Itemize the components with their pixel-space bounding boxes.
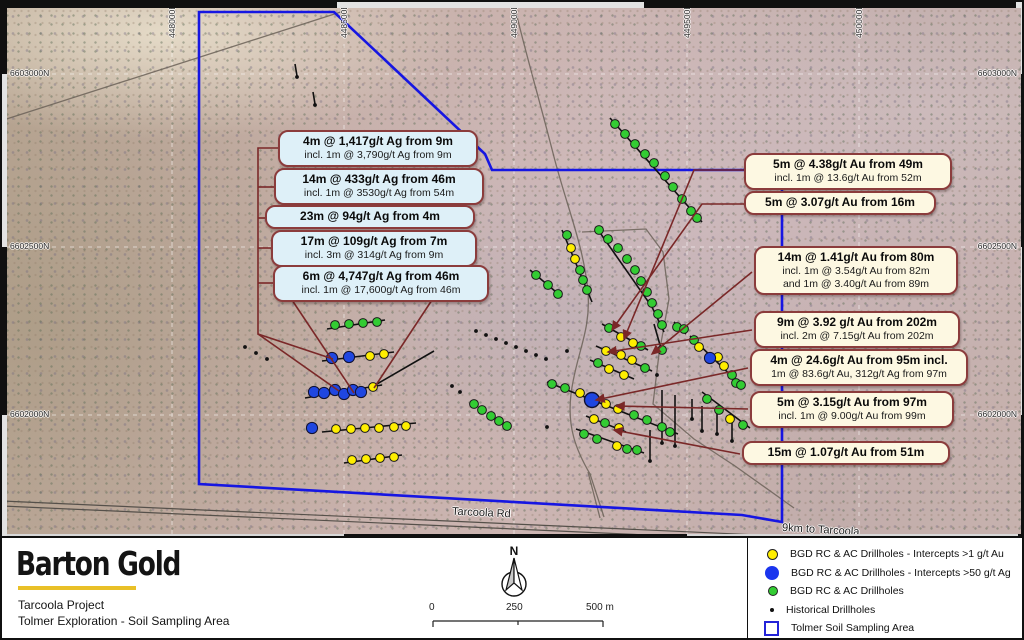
bgd-drillhole xyxy=(594,359,603,368)
gold-assay-callout: 5m @ 4.38g/t Au from 49mincl. 1m @ 13.6g… xyxy=(744,153,952,190)
historical-drillhole xyxy=(660,441,664,445)
assay-headline: 5m @ 3.15g/t Au from 97m xyxy=(760,395,944,410)
au-intercept-drillhole xyxy=(348,456,357,465)
map-figure: 448000E448500E449000E449500E450000E66030… xyxy=(0,0,1024,640)
north-arrow-icon xyxy=(498,556,530,598)
assay-detail: 1m @ 83.6g/t Au, 312g/t Ag from 97m xyxy=(760,368,958,381)
silver-assay-callout: 4m @ 1,417g/t Ag from 9mincl. 1m @ 3,790… xyxy=(278,130,478,167)
au-intercept-drillhole xyxy=(602,347,611,356)
bgd-drillhole xyxy=(601,419,610,428)
northing-label-right: 6603000N xyxy=(978,68,1017,78)
bgd-drillhole xyxy=(611,120,620,129)
bgd-drillhole xyxy=(605,324,614,333)
scale-tick-0: 0 xyxy=(429,602,435,613)
bgd-drillhole xyxy=(548,380,557,389)
au-intercept-drillhole xyxy=(720,362,729,371)
scale-tick-250: 250 xyxy=(506,602,523,613)
legend-label: BGD RC & AC Drillholes xyxy=(790,585,904,597)
bgd-drillhole xyxy=(563,231,572,240)
historical-drillhole xyxy=(450,384,454,388)
bgd-drillhole xyxy=(669,183,678,192)
assay-headline: 4m @ 1,417g/t Ag from 9m xyxy=(288,134,468,149)
legend-label: BGD RC & AC Drillholes - Intercepts >50 … xyxy=(791,567,1011,579)
historical-drillhole xyxy=(545,425,549,429)
bgd-drillhole xyxy=(373,318,382,327)
historical-drillhole xyxy=(648,459,652,463)
bgd-drillhole xyxy=(345,320,354,329)
map-subtitle: Tolmer Exploration - Soil Sampling Area xyxy=(18,614,229,628)
northing-label-right: 6602500N xyxy=(978,241,1017,251)
au-intercept-drillhole xyxy=(629,339,638,348)
northing-label-left: 6603000N xyxy=(10,68,49,78)
legend-label: BGD RC & AC Drillholes - Intercepts >1 g… xyxy=(790,548,1004,560)
easting-label: 450000E xyxy=(854,2,864,51)
assay-detail: incl. 1m @ 3.54g/t Au from 82m and 1m @ … xyxy=(764,265,948,290)
assay-headline: 23m @ 94g/t Ag from 4m xyxy=(275,209,465,224)
assay-detail: incl. 1m @ 13.6g/t Au from 52m xyxy=(754,172,942,185)
legend-item-blue: BGD RC & AC Drillholes - Intercepts >50 … xyxy=(764,565,1011,581)
leader-line xyxy=(258,334,339,391)
au-intercept-drillhole xyxy=(390,423,399,432)
historical-drillhole xyxy=(730,439,734,443)
green-marker-icon xyxy=(768,586,778,596)
historical-drillhole xyxy=(254,351,258,355)
track xyxy=(515,8,604,517)
bgd-drillhole xyxy=(554,290,563,299)
leader-line xyxy=(624,170,744,339)
au-intercept-drillhole xyxy=(375,424,384,433)
bgd-drillhole xyxy=(621,130,630,139)
ag-intercept-drillhole xyxy=(318,387,329,398)
bgd-drillhole xyxy=(739,421,748,430)
assay-detail: incl. 1m @ 9.00g/t Au from 99m xyxy=(760,410,944,423)
easting-label: 448500E xyxy=(339,2,349,51)
au-intercept-drillhole xyxy=(605,365,614,374)
project-title: Tarcoola Project xyxy=(18,598,104,612)
legend-label: Historical Drillholes xyxy=(786,604,875,616)
au-intercept-drillhole xyxy=(613,442,622,451)
historical-drillhole xyxy=(690,417,694,421)
au-intercept-drillhole xyxy=(376,454,385,463)
ag-intercept-drillhole xyxy=(343,351,354,362)
bgd-drillhole xyxy=(604,235,613,244)
assay-headline: 15m @ 1.07g/t Au from 51m xyxy=(752,445,940,460)
silver-assay-callout: 6m @ 4,747g/t Ag from 46mincl. 1m @ 17,6… xyxy=(273,265,489,302)
easting-label: 448000E xyxy=(167,2,177,51)
leader-line xyxy=(374,300,432,388)
assay-headline: 9m @ 3.92 g/t Au from 202m xyxy=(764,315,950,330)
au-intercept-drillhole xyxy=(567,244,576,253)
assay-headline: 14m @ 1.41g/t Au from 80m xyxy=(764,250,948,265)
silver-assay-callout: 23m @ 94g/t Ag from 4m xyxy=(265,205,475,229)
yellow-marker-icon xyxy=(767,549,778,560)
northing-label-right: 6602000N xyxy=(978,409,1017,419)
au-intercept-drillhole xyxy=(361,424,370,433)
legend-item-yellow: BGD RC & AC Drillholes - Intercepts >1 g… xyxy=(764,546,1004,562)
satellite-map: 448000E448500E449000E449500E450000E66030… xyxy=(2,2,1024,540)
gold-assay-callout: 5m @ 3.07g/t Au from 16m xyxy=(744,191,936,215)
ag-intercept-drillhole xyxy=(306,422,317,433)
bgd-drillhole xyxy=(737,381,746,390)
legend-item-black: Historical Drillholes xyxy=(764,602,875,618)
au-intercept-drillhole xyxy=(571,255,580,264)
au-intercept-drillhole xyxy=(402,422,411,431)
bgd-drillhole xyxy=(703,395,712,404)
scale-bar xyxy=(432,620,604,628)
bgd-drillhole xyxy=(532,271,541,280)
assay-headline: 5m @ 4.38g/t Au from 49m xyxy=(754,157,942,172)
au-intercept-drillhole xyxy=(366,352,375,361)
bgd-drillhole xyxy=(666,428,675,437)
bgd-drillhole xyxy=(495,417,504,426)
historical-drillhole xyxy=(458,390,462,394)
historical-drillhole xyxy=(514,345,518,349)
assay-detail: incl. 2m @ 7.15g/t Au from 202m xyxy=(764,330,950,343)
easting-label: 449500E xyxy=(682,2,692,51)
assay-headline: 14m @ 433g/t Ag from 46m xyxy=(284,172,474,187)
assay-headline: 6m @ 4,747g/t Ag from 46m xyxy=(283,269,479,284)
au-intercept-drillhole xyxy=(620,371,629,380)
bgd-drillhole xyxy=(580,430,589,439)
bgd-drillhole xyxy=(633,446,642,455)
bgd-drillhole xyxy=(595,226,604,235)
au-intercept-drillhole xyxy=(332,425,341,434)
bgd-drillhole xyxy=(583,286,592,295)
bgd-drillhole xyxy=(478,406,487,415)
au-intercept-drillhole xyxy=(347,425,356,434)
assay-detail: incl. 1m @ 3530g/t Ag from 54m xyxy=(284,187,474,200)
au-intercept-drillhole xyxy=(602,400,611,409)
bgd-drillhole xyxy=(470,400,479,409)
bgd-drillhole xyxy=(544,281,553,290)
leader-line xyxy=(616,406,748,409)
easting-label: 449000E xyxy=(509,2,519,51)
track xyxy=(588,472,600,518)
historical-drillhole xyxy=(494,337,498,341)
historical-drillhole xyxy=(524,349,528,353)
historical-drillhole xyxy=(243,345,247,349)
historical-drillhole xyxy=(673,444,677,448)
gold-assay-callout: 9m @ 3.92 g/t Au from 202mincl. 2m @ 7.1… xyxy=(754,311,960,348)
historical-drillhole xyxy=(295,75,299,79)
au-intercept-drillhole xyxy=(576,389,585,398)
assay-detail: incl. 1m @ 17,600g/t Ag from 46m xyxy=(283,284,479,297)
gold-assay-callout: 4m @ 24.6g/t Au from 95m incl.1m @ 83.6g… xyxy=(750,349,968,386)
au-intercept-drillhole xyxy=(390,453,399,462)
bgd-drillhole xyxy=(576,266,585,275)
bgd-drillhole xyxy=(641,150,650,159)
northing-label-left: 6602000N xyxy=(10,409,49,419)
au-intercept-drillhole xyxy=(628,356,637,365)
assay-headline: 17m @ 109g/t Ag from 7m xyxy=(281,234,467,249)
bgd-drillhole xyxy=(650,159,659,168)
bgd-drillhole xyxy=(648,299,657,308)
assay-headline: 5m @ 3.07g/t Au from 16m xyxy=(754,195,926,210)
bgd-drillhole xyxy=(715,406,724,415)
historical-drillhole xyxy=(534,353,538,357)
bgd-drillhole xyxy=(631,140,640,149)
historical-drillhole xyxy=(655,373,659,377)
au-intercept-drillhole xyxy=(617,351,626,360)
bgd-drillhole xyxy=(661,172,670,181)
assay-headline: 4m @ 24.6g/t Au from 95m incl. xyxy=(760,353,958,368)
legend-item-green: BGD RC & AC Drillholes xyxy=(764,583,904,599)
bgd-drillhole xyxy=(643,416,652,425)
gold-assay-callout: 5m @ 3.15g/t Au from 97mincl. 1m @ 9.00g… xyxy=(750,391,954,428)
historical-drillhole xyxy=(474,329,478,333)
historical-drillhole xyxy=(544,357,548,361)
gold-assay-callout: 15m @ 1.07g/t Au from 51m xyxy=(742,441,950,465)
bgd-drillhole xyxy=(631,266,640,275)
historical-drillhole xyxy=(565,349,569,353)
bluesq-marker-icon xyxy=(764,621,779,636)
bgd-drillhole xyxy=(487,412,496,421)
bgd-drillhole xyxy=(579,276,588,285)
silver-assay-callout: 17m @ 109g/t Ag from 7mincl. 3m @ 314g/t… xyxy=(271,230,477,267)
ag-intercept-drillhole xyxy=(355,386,366,397)
blue-marker-icon xyxy=(765,566,779,580)
bgd-drillhole xyxy=(641,364,650,373)
barton-gold-logo: Barton Gold xyxy=(16,544,180,583)
bgd-drillhole xyxy=(623,255,632,264)
neatline-top xyxy=(2,2,1024,8)
historical-drillhole xyxy=(715,432,719,436)
assay-detail: incl. 3m @ 314g/t Ag from 9m xyxy=(281,249,467,262)
bgd-drillhole xyxy=(654,310,663,319)
au-intercept-drillhole xyxy=(380,350,389,359)
northing-label-left: 6602500N xyxy=(10,241,49,251)
historical-drillhole xyxy=(504,341,508,345)
bgd-drillhole xyxy=(561,384,570,393)
gold-assay-callout: 14m @ 1.41g/t Au from 80mincl. 1m @ 3.54… xyxy=(754,246,958,295)
bgd-drillhole xyxy=(623,445,632,454)
au-intercept-drillhole xyxy=(726,415,735,424)
historical-drillhole xyxy=(313,103,317,107)
bgd-drillhole xyxy=(658,346,667,355)
ag-intercept-drillhole xyxy=(704,352,715,363)
legend: BGD RC & AC Drillholes - Intercepts >1 g… xyxy=(748,538,1024,638)
logo-underline xyxy=(18,586,136,590)
neatline-left xyxy=(2,2,7,540)
legend-item-bluesq: Tolmer Soil Sampling Area xyxy=(764,620,914,636)
bgd-drillhole xyxy=(630,411,639,420)
bgd-drillhole xyxy=(593,435,602,444)
bgd-drillhole xyxy=(658,321,667,330)
ag-intercept-drillhole xyxy=(308,386,319,397)
assay-detail: incl. 1m @ 3,790g/t Ag from 9m xyxy=(288,149,468,162)
bgd-drillhole xyxy=(359,319,368,328)
au-intercept-drillhole xyxy=(590,415,599,424)
bgd-drillhole xyxy=(614,244,623,253)
scale-tick-500: 500 m xyxy=(586,602,614,613)
au-intercept-drillhole xyxy=(362,455,371,464)
map-footer: Barton Gold Tarcoola Project Tolmer Expl… xyxy=(2,536,1024,638)
legend-label: Tolmer Soil Sampling Area xyxy=(791,622,914,634)
au-intercept-drillhole xyxy=(695,343,704,352)
historical-drillhole xyxy=(265,357,269,361)
bgd-drillhole xyxy=(331,321,340,330)
bgd-drillhole xyxy=(658,423,667,432)
historical-drillhole xyxy=(700,429,704,433)
bgd-drillhole xyxy=(503,422,512,431)
historical-drillhole xyxy=(484,333,488,337)
silver-assay-callout: 14m @ 433g/t Ag from 46mincl. 1m @ 3530g… xyxy=(274,168,484,205)
black-marker-icon xyxy=(770,608,774,612)
